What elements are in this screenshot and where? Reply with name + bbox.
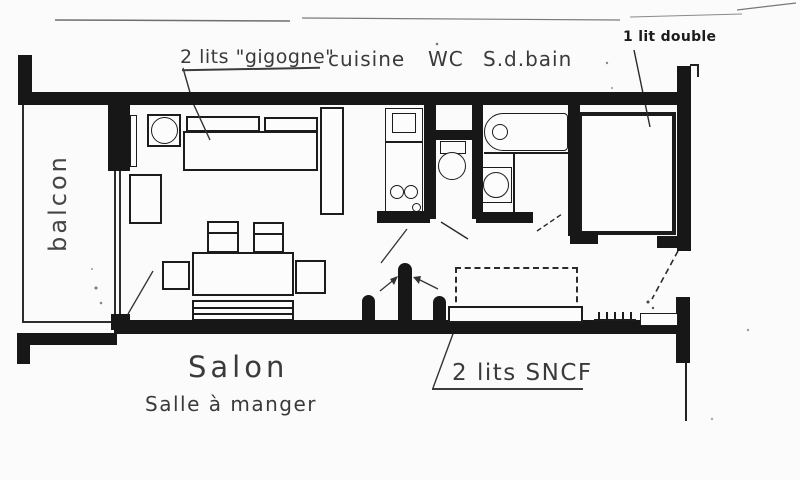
wall-bedroom-stub-right — [657, 236, 678, 248]
radiator-tick — [630, 312, 632, 321]
wall-right-lower — [676, 297, 690, 363]
label-cuisine: cuisine — [328, 47, 405, 71]
partition-post-1 — [362, 295, 375, 334]
partition-post-3 — [433, 296, 446, 334]
leader-balcony-door — [128, 271, 153, 314]
floor-plan: 2 lits "gigogne" cuisine WC S.d.bain 1 l… — [0, 0, 800, 480]
radiator-tick — [614, 312, 616, 321]
wall-wc-bathroom — [472, 104, 483, 219]
radiator-tick — [606, 312, 608, 321]
wall-bedroom-stub-left — [570, 232, 598, 244]
underline-sncf — [432, 388, 583, 390]
wall-bathroom-bedroom — [568, 104, 580, 236]
arrow-head-right — [413, 276, 421, 284]
wall-balcony-bottom — [17, 333, 117, 345]
wall-right-thin-extension — [685, 363, 687, 421]
entry-door-swing — [652, 251, 678, 299]
label-lits-sncf: 2 lits SNCF — [452, 360, 593, 386]
label-lit-double: 1 lit double — [623, 29, 716, 45]
entry-cabinet — [640, 313, 678, 326]
wc-door-swing — [441, 222, 468, 239]
wall-kitchen-bottom — [377, 211, 430, 223]
wall-balcony-bottom-stub — [17, 333, 30, 364]
wall-balcony-door-upper — [108, 103, 130, 171]
radiator-tick — [622, 312, 624, 321]
wall-kitchen-wc — [424, 104, 436, 219]
partition-post-2 — [398, 263, 412, 334]
radiator-tick — [598, 312, 600, 321]
label-balcon: balcon — [44, 154, 72, 252]
wall-top-right-hook-v — [697, 64, 699, 77]
wall-right-upper — [677, 66, 691, 251]
leader-partition — [381, 229, 407, 263]
bathroom-door-swing — [537, 214, 562, 231]
label-sdbain: S.d.bain — [483, 47, 572, 71]
label-wc: WC — [428, 47, 464, 71]
sncf-bed-bench — [448, 306, 583, 323]
label-salon: Salon — [188, 350, 288, 384]
wall-wc-rear — [434, 130, 473, 140]
arrow-head-left — [390, 276, 398, 285]
label-salle-a-manger: Salle à manger — [145, 392, 317, 416]
label-beds-gigogne: 2 lits "gigogne" — [180, 46, 334, 68]
leader-lit-double — [634, 50, 650, 127]
wall-bottom — [114, 320, 678, 334]
wall-bathroom-bottom — [476, 212, 533, 223]
